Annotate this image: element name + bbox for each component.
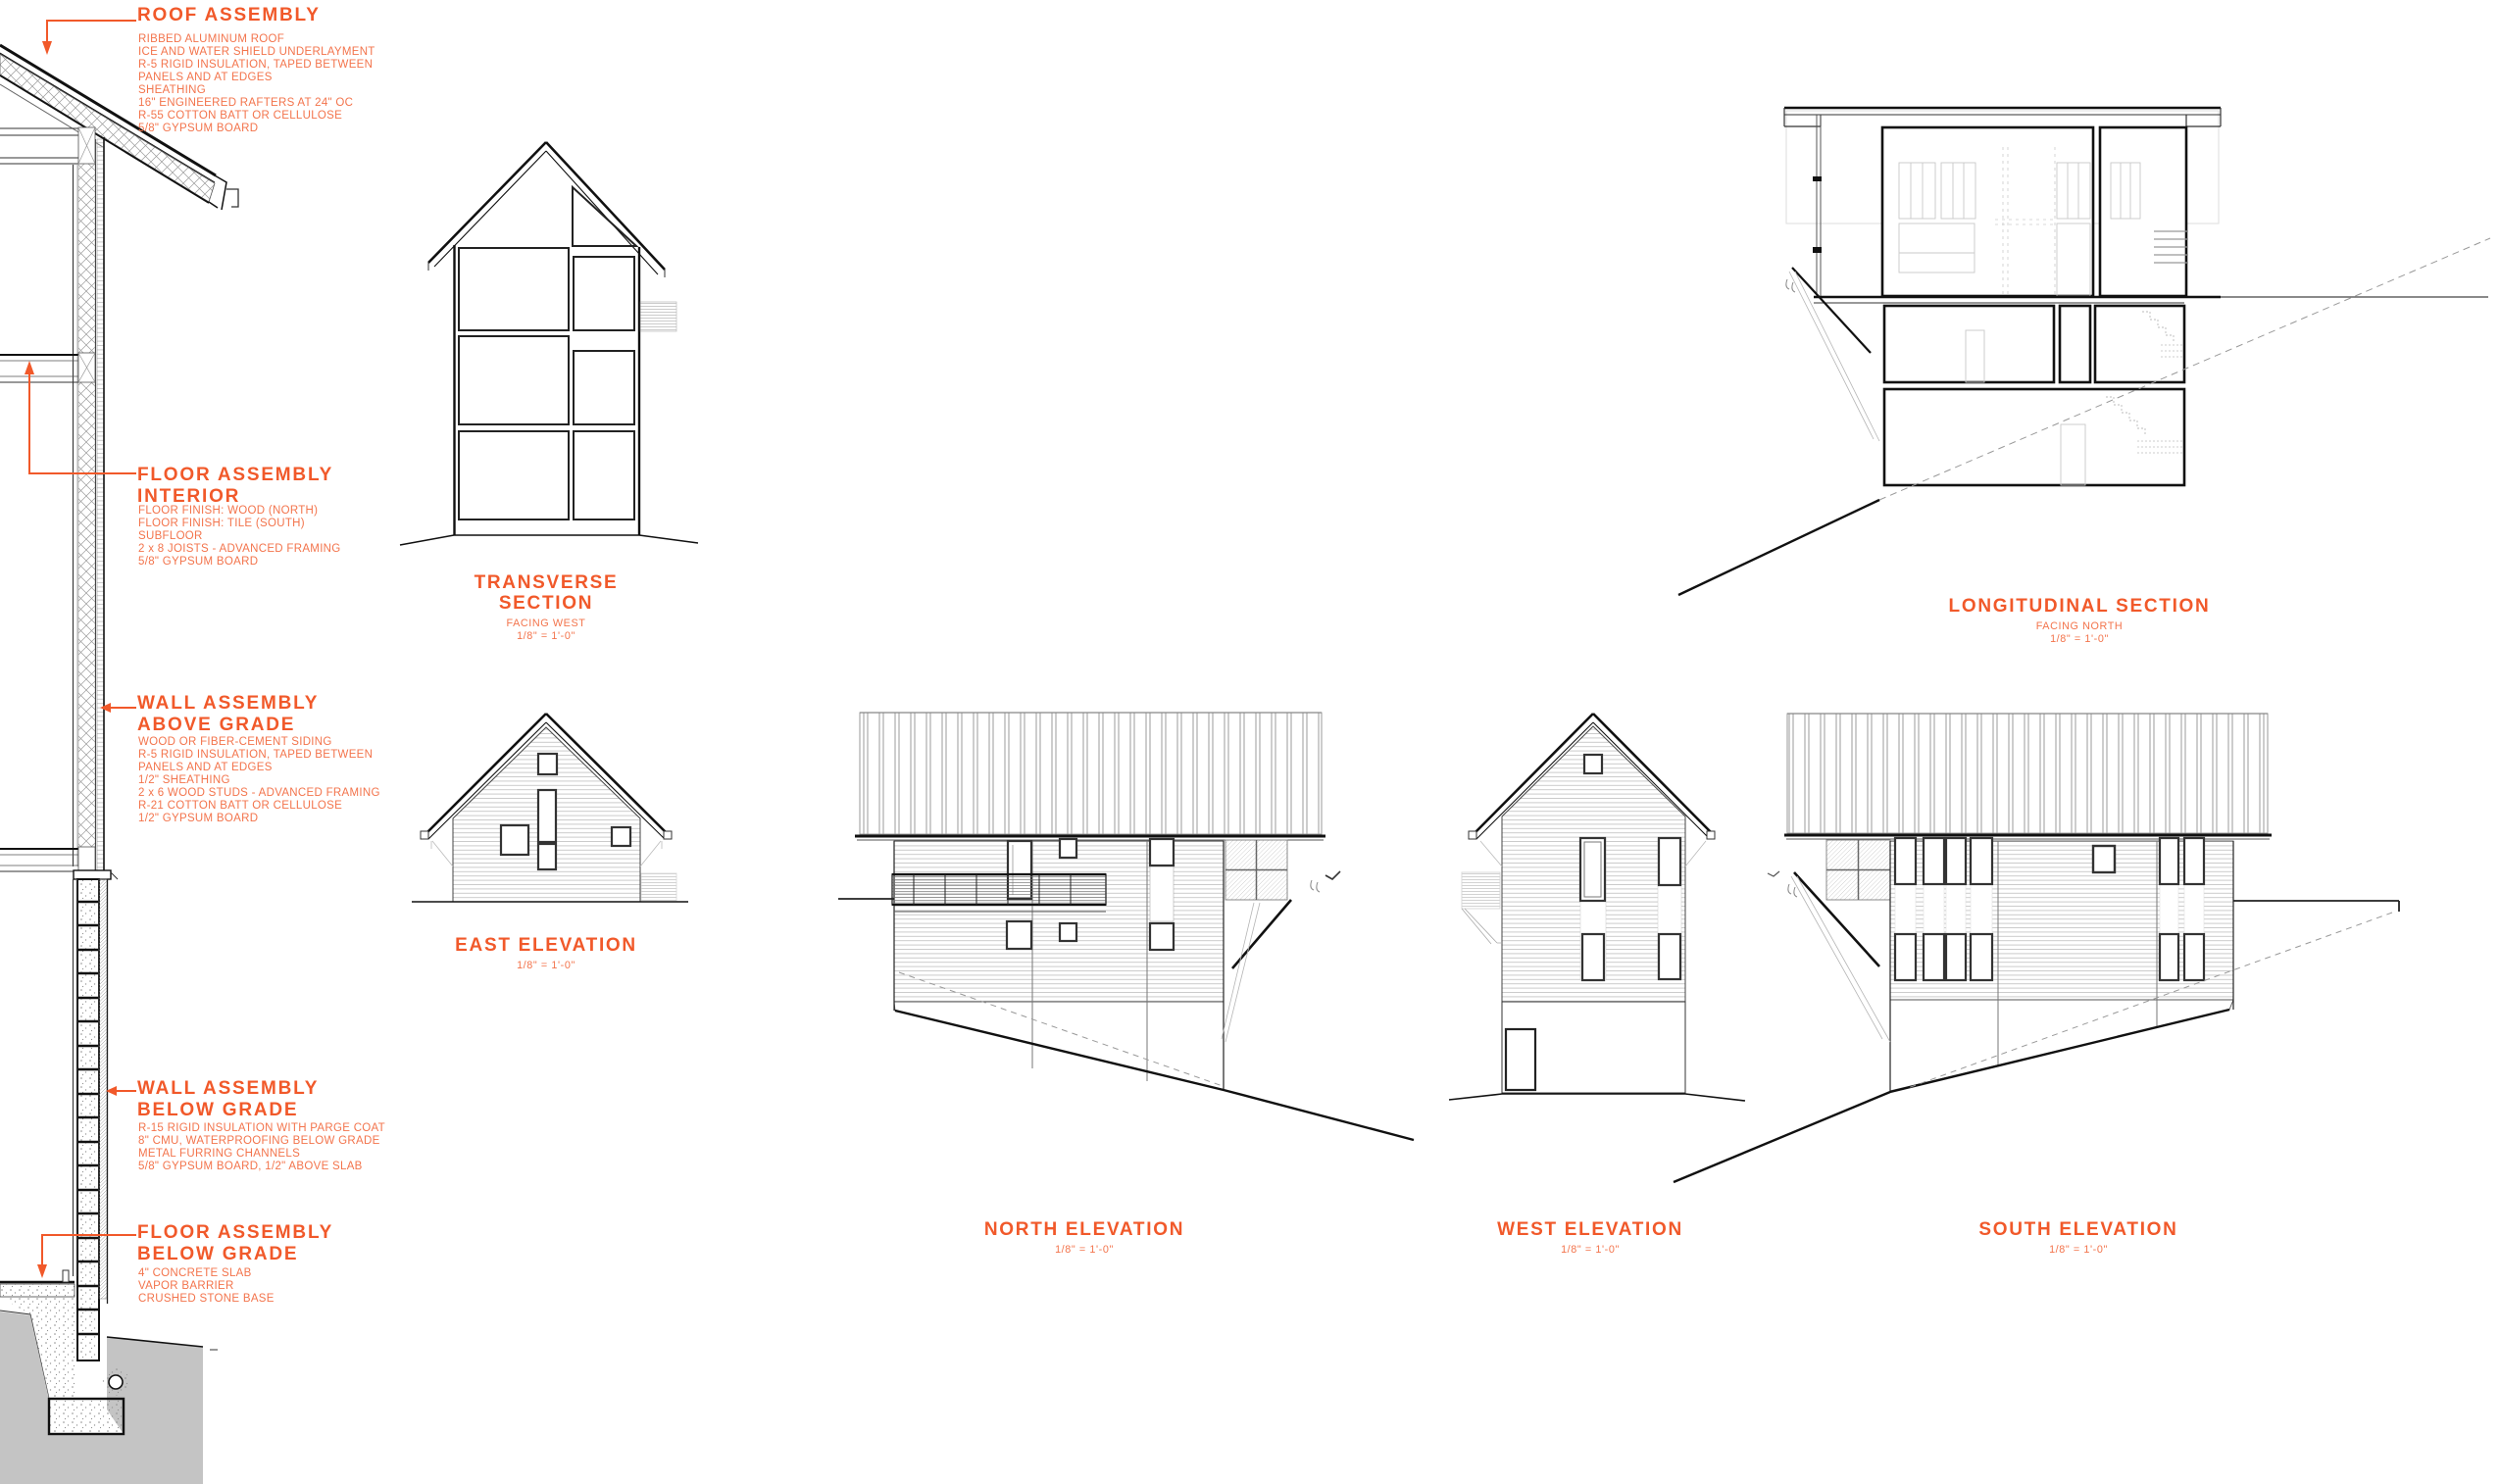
drawing-scale: 1/8" = 1'-0": [438, 630, 654, 643]
longitudinal-section-drawing: [1678, 108, 2490, 595]
callout-body-floor-assembly-below-grade: 4" CONCRETE SLAB VAPOR BARRIER CRUSHED S…: [138, 1267, 383, 1306]
transverse-section-drawing: [400, 142, 698, 545]
drawing-title: NORTH ELEVATION: [976, 1219, 1192, 1240]
drawing-title: EAST ELEVATION: [438, 935, 654, 956]
north-elevation-drawing: [838, 713, 1414, 1140]
callout-title-wall-assembly-below-grade: WALL ASSEMBLY BELOW GRADE: [137, 1078, 363, 1121]
label-south-elevation: SOUTH ELEVATION 1/8" = 1'-0": [1971, 1219, 2186, 1257]
label-north-elevation: NORTH ELEVATION 1/8" = 1'-0": [976, 1219, 1192, 1257]
callout-title-roof-assembly: ROOF ASSEMBLY: [137, 5, 363, 26]
drawing-title: SOUTH ELEVATION: [1971, 1219, 2186, 1240]
drawing-scale: 1/8" = 1'-0": [1971, 1244, 2186, 1257]
drawing-scale: 1/8" = 1'-0": [438, 960, 654, 972]
callout-title-floor-assembly-interior: FLOOR ASSEMBLY INTERIOR: [137, 465, 363, 508]
drawing-sheet: ROOF ASSEMBLY RIBBED ALUMINUM ROOF ICE A…: [0, 0, 2500, 1484]
east-elevation-drawing: [412, 714, 688, 902]
callout-title-wall-assembly-above-grade: WALL ASSEMBLY ABOVE GRADE: [137, 693, 363, 736]
label-transverse-section: TRANSVERSE SECTION FACING WEST 1/8" = 1'…: [438, 572, 654, 643]
drawing-title: LONGITUDINAL SECTION: [1923, 596, 2236, 617]
callout-body-roof-assembly: RIBBED ALUMINUM ROOF ICE AND WATER SHIEL…: [138, 33, 383, 135]
label-longitudinal-section: LONGITUDINAL SECTION FACING NORTH 1/8" =…: [1923, 596, 2236, 646]
drawing-scale: 1/8" = 1'-0": [1482, 1244, 1698, 1257]
callout-body-wall-assembly-above-grade: WOOD OR FIBER-CEMENT SIDING R-5 RIGID IN…: [138, 736, 383, 825]
drawing-title: WEST ELEVATION: [1482, 1219, 1698, 1240]
drawing-scale: 1/8" = 1'-0": [976, 1244, 1192, 1257]
south-elevation-drawing: [1674, 714, 2399, 1182]
label-west-elevation: WEST ELEVATION 1/8" = 1'-0": [1482, 1219, 1698, 1257]
leaf-icon: [1788, 884, 1797, 897]
label-east-elevation: EAST ELEVATION 1/8" = 1'-0": [438, 935, 654, 972]
bird-icon: [1768, 871, 1779, 876]
west-elevation-drawing: [1449, 714, 1779, 1101]
drawing-subtitle: FACING NORTH: [1923, 620, 2236, 633]
bird-icon: [1325, 871, 1340, 879]
callout-title-floor-assembly-below-grade: FLOOR ASSEMBLY BELOW GRADE: [137, 1222, 363, 1265]
drawing-title: TRANSVERSE SECTION: [438, 572, 654, 614]
drawing-scale: 1/8" = 1'-0": [1923, 633, 2236, 646]
callout-body-wall-assembly-below-grade: R-15 RIGID INSULATION WITH PARGE COAT 8"…: [138, 1122, 383, 1173]
callout-body-floor-assembly-interior: FLOOR FINISH: WOOD (NORTH) FLOOR FINISH:…: [138, 505, 383, 569]
leaf-icon: [1311, 880, 1320, 892]
drawing-subtitle: FACING WEST: [438, 618, 654, 630]
